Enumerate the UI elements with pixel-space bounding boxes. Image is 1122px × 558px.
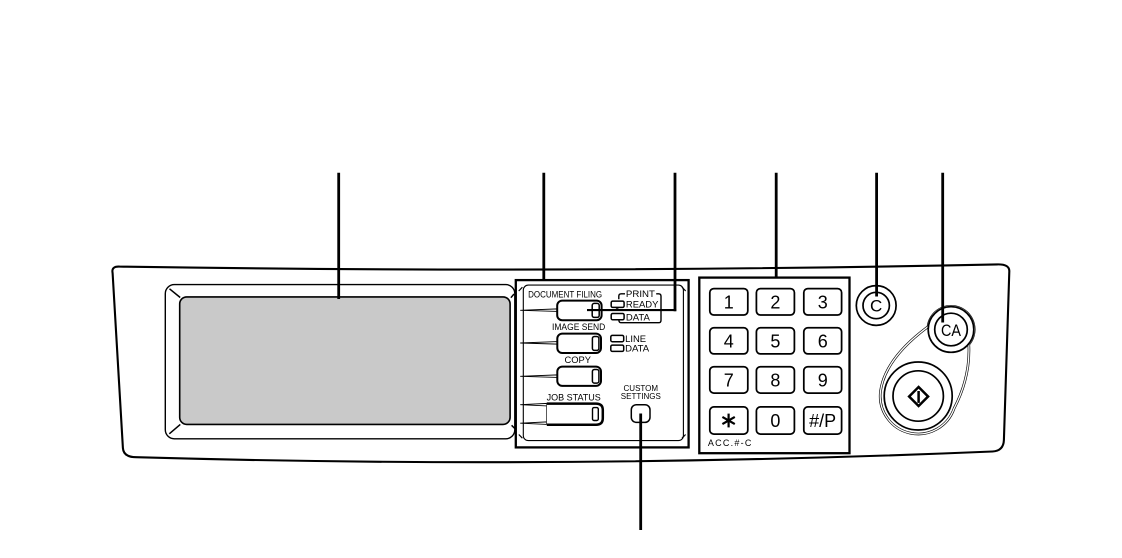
svg-text:IMAGE SEND: IMAGE SEND — [552, 322, 606, 332]
svg-text:4: 4 — [724, 331, 734, 351]
svg-text:READY: READY — [626, 300, 659, 310]
svg-text:C: C — [870, 297, 882, 316]
svg-text:JOB STATUS: JOB STATUS — [547, 392, 601, 402]
svg-text:1: 1 — [724, 292, 734, 312]
svg-text:8: 8 — [770, 370, 780, 390]
svg-text:5: 5 — [770, 331, 780, 351]
svg-text:6: 6 — [818, 331, 828, 351]
svg-text:#/P: #/P — [809, 411, 836, 431]
svg-text:DOCUMENT FILING: DOCUMENT FILING — [528, 289, 602, 299]
svg-text:2: 2 — [770, 292, 780, 312]
svg-text:CA: CA — [941, 321, 962, 340]
svg-text:SETTINGS: SETTINGS — [621, 392, 661, 401]
svg-text:0: 0 — [770, 411, 780, 431]
svg-text:7: 7 — [724, 370, 734, 390]
svg-text:DATA: DATA — [625, 344, 649, 354]
svg-text:COPY: COPY — [565, 355, 592, 365]
svg-text:ACC.#-C: ACC.#-C — [708, 438, 753, 448]
svg-text:LINE: LINE — [625, 334, 646, 344]
svg-text:9: 9 — [818, 370, 828, 390]
svg-text:PRINT: PRINT — [626, 289, 656, 299]
svg-text:3: 3 — [818, 292, 828, 312]
svg-text:DATA: DATA — [626, 312, 650, 322]
